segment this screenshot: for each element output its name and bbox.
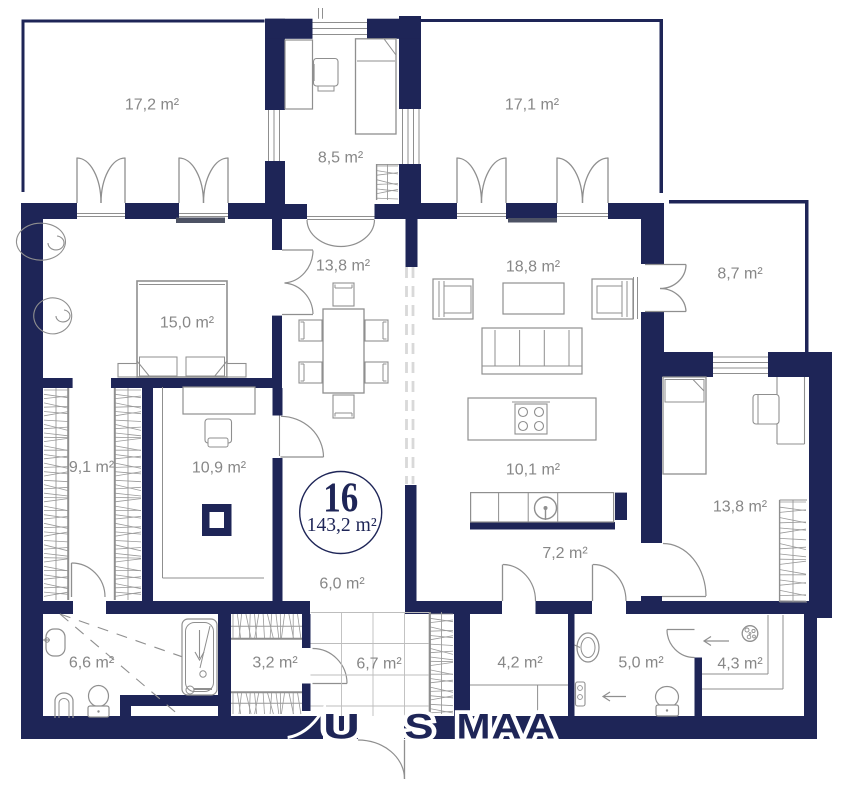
- svg-text:10,1 m²: 10,1 m²: [506, 462, 561, 479]
- svg-text:10,9 m²: 10,9 m²: [192, 460, 247, 477]
- svg-text:6,7 m²: 6,7 m²: [356, 656, 402, 673]
- svg-text:17,2 m²: 17,2 m²: [125, 97, 180, 114]
- svg-text:15,0 m²: 15,0 m²: [160, 315, 215, 332]
- svg-text:8,5 m²: 8,5 m²: [318, 150, 364, 167]
- svg-text:4,3 m²: 4,3 m²: [717, 656, 763, 673]
- svg-text:A: A: [492, 708, 522, 747]
- svg-text:17,1 m²: 17,1 m²: [505, 97, 560, 114]
- svg-text:M: M: [457, 708, 491, 747]
- svg-text:S: S: [405, 708, 434, 747]
- svg-text:9,1 m²: 9,1 m²: [69, 459, 115, 476]
- svg-text:18,8 m²: 18,8 m²: [506, 259, 561, 276]
- svg-text:U: U: [323, 708, 360, 747]
- svg-text:7,2 m²: 7,2 m²: [542, 545, 588, 562]
- svg-text:13,8 m²: 13,8 m²: [713, 499, 768, 516]
- svg-text:3,2 m²: 3,2 m²: [252, 655, 298, 672]
- svg-text:4,2 m²: 4,2 m²: [497, 655, 543, 672]
- svg-text:143,2 m²: 143,2 m²: [307, 514, 377, 536]
- svg-text:6,0 m²: 6,0 m²: [319, 576, 365, 593]
- svg-text:13,8 m²: 13,8 m²: [316, 258, 371, 275]
- svg-text:8,7 m²: 8,7 m²: [717, 266, 763, 283]
- svg-text:5,0 m²: 5,0 m²: [618, 655, 664, 672]
- svg-text:A: A: [525, 708, 555, 747]
- svg-text:6,6 m²: 6,6 m²: [69, 655, 115, 672]
